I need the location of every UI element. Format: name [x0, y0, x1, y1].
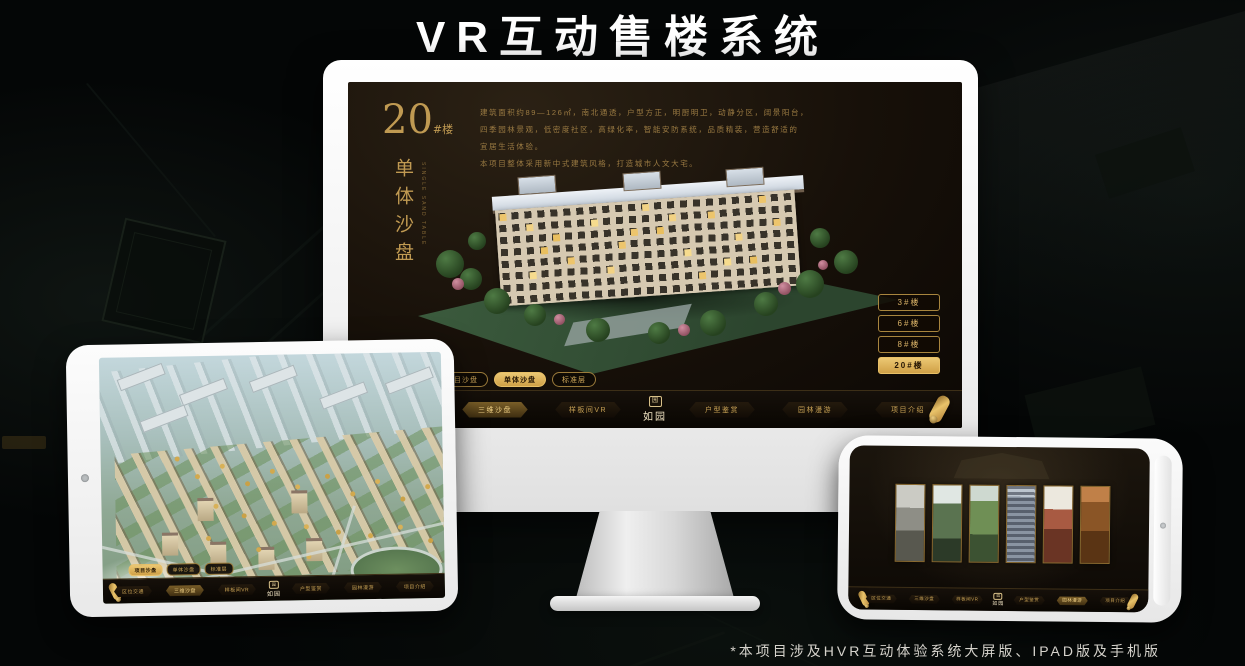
building-number: 20	[382, 97, 433, 143]
floor-button-group: 3#楼 6#楼 8#楼 20#楼	[878, 294, 940, 374]
nav-item-label: 户型鉴赏	[1019, 597, 1039, 603]
vertical-title-english: SINGLE SAND TABLE	[420, 162, 426, 246]
floor-button-6[interactable]: 6#楼	[878, 315, 940, 332]
flower-bush	[452, 278, 464, 290]
roof-tower	[622, 171, 661, 192]
footnote-caption: *本项目涉及HVR互动体验系统大屏版、IPAD版及手机版	[730, 641, 1161, 661]
scene-panel-garden[interactable]	[932, 484, 963, 562]
floor-button-label: 20#楼	[894, 360, 923, 371]
phone-navbar: 区位交通 三维沙盘 样板间VR 园 如园 户型鉴赏 园林漫游 项目介绍	[848, 586, 1148, 612]
flower-bush	[554, 314, 565, 325]
flower-bush	[678, 324, 690, 336]
nav-item-showroom-vr[interactable]: 样板间VR	[949, 595, 985, 604]
nav-item-label: 项目介绍	[891, 405, 925, 415]
brand-logo: 园 如园	[992, 593, 1004, 607]
tree	[834, 250, 858, 274]
brand-seal-icon: 园	[649, 396, 662, 407]
nav-item-label: 三维沙盘	[478, 405, 512, 415]
nav-item-label: 样板间VR	[225, 586, 250, 593]
flower-bush	[818, 260, 828, 270]
nav-item-label: 园林漫游	[798, 405, 832, 415]
nav-item-showroom-vr[interactable]: 样板间VR	[550, 402, 626, 418]
monitor-stand	[576, 511, 734, 598]
phone-side-bezel	[1153, 456, 1172, 606]
aerial-tower	[210, 542, 226, 565]
monitor-stand-base	[550, 596, 760, 611]
nav-item-label: 项目介绍	[404, 583, 426, 590]
vertical-title: 单体沙盘	[390, 158, 417, 270]
tab-project-sandtable[interactable]: 项目沙盘	[128, 564, 162, 577]
tree	[700, 310, 726, 336]
phone-camera-icon	[1160, 523, 1166, 529]
nav-item-garden-tour[interactable]: 园林漫游	[1054, 596, 1090, 605]
scene-panel-autumn-view[interactable]	[1043, 485, 1074, 563]
nav-item-floorplans[interactable]: 户型鉴赏	[1011, 596, 1047, 605]
tab-single-sandtable[interactable]: 单体沙盘	[166, 563, 200, 576]
nav-item-3d-sandtable[interactable]: 三维沙盘	[906, 594, 942, 603]
building-number-heading: 20#楼	[382, 98, 453, 152]
nav-item-location[interactable]: 区位交通	[863, 594, 899, 603]
nav-item-3d-sandtable[interactable]: 三维沙盘	[457, 402, 533, 418]
nav-item-label: 三维沙盘	[174, 587, 196, 594]
description-line: 宜居生活体验。	[480, 138, 910, 155]
background-map-marker	[2, 436, 46, 449]
floor-button-label: 8#楼	[898, 339, 921, 350]
tree	[484, 288, 510, 314]
flower-bush	[778, 282, 791, 295]
aerial-tower	[197, 498, 213, 521]
scroll-menu-icon[interactable]	[927, 394, 952, 425]
tree	[436, 250, 464, 278]
tree	[810, 228, 830, 248]
description-line: 本项目整体采用新中式建筑风格，打造城市人文大宅。	[480, 155, 910, 172]
nav-item-floorplans[interactable]: 户型鉴赏	[289, 582, 333, 594]
nav-item-label: 区位交通	[122, 588, 144, 595]
scroll-menu-icon[interactable]	[1126, 593, 1139, 610]
floor-button-label: 3#楼	[898, 297, 921, 308]
poster-title: VR互动售楼系统	[0, 1, 1245, 65]
nav-item-garden-tour[interactable]: 园林漫游	[777, 402, 853, 418]
description-line: 四季园林景观，低密度社区，高绿化率，智能安防系统，品质精装，营造舒适的	[480, 121, 910, 138]
mode-tab-group: 项目沙盘 单体沙盘 标准层	[436, 372, 596, 387]
nav-item-location[interactable]: 区位交通	[111, 585, 155, 597]
floor-button-label: 6#楼	[898, 318, 921, 329]
brand-logo: 园 如园	[643, 396, 667, 423]
nav-item-label: 园林漫游	[352, 584, 374, 591]
tab-standard-floor[interactable]: 标准层	[552, 372, 596, 387]
scene-panel-interior[interactable]	[1080, 486, 1111, 564]
nav-item-project-intro[interactable]: 项目介绍	[393, 580, 437, 592]
poster-canvas: VR互动售楼系统 20#楼 单体沙盘 SINGLE SAND TABLE 建筑面…	[0, 0, 1245, 666]
brand-logo-name: 如园	[267, 588, 281, 597]
building-number-suffix: #楼	[433, 123, 453, 136]
brand-logo-name: 如园	[643, 408, 667, 423]
nav-item-label: 项目介绍	[1105, 598, 1125, 604]
building-marker-dots[interactable]	[175, 456, 180, 461]
scene-panel-building-facade[interactable]	[1006, 485, 1037, 563]
tree	[586, 318, 610, 342]
tab-label: 单体沙盘	[173, 566, 195, 573]
brand-seal-icon: 园	[269, 580, 279, 588]
tree	[524, 304, 546, 326]
nav-item-label: 区位交通	[871, 596, 891, 602]
nav-item-label: 三维沙盘	[914, 596, 934, 602]
floor-button-20[interactable]: 20#楼	[878, 357, 940, 374]
roof-tower	[725, 167, 764, 188]
scene-panel-landscape[interactable]	[969, 485, 1000, 563]
brand-logo-name: 如园	[992, 600, 1004, 607]
tablet-navbar: 区位交通 三维沙盘 样板间VR 园 如园 户型鉴赏 园林漫游 项目介绍	[103, 573, 445, 604]
tree	[796, 270, 824, 298]
nav-item-label: 园林漫游	[1062, 598, 1082, 604]
tab-label: 标准层	[562, 375, 586, 385]
nav-item-label: 样板间VR	[956, 596, 978, 602]
tablet-camera-icon	[81, 474, 89, 482]
phone-screen: 区位交通 三维沙盘 样板间VR 园 如园 户型鉴赏 园林漫游 项目介绍	[848, 445, 1150, 612]
brand-logo: 园 如园	[267, 580, 281, 597]
scene-panel-courtyard[interactable]	[895, 484, 926, 562]
nav-item-garden-tour[interactable]: 园林漫游	[341, 581, 385, 593]
nav-item-floorplans[interactable]: 户型鉴赏	[684, 402, 760, 418]
phone-device: 区位交通 三维沙盘 样板间VR 园 如园 户型鉴赏 园林漫游 项目介绍	[837, 435, 1183, 623]
tab-standard-floor[interactable]: 标准层	[205, 563, 234, 575]
roof-tower	[517, 175, 556, 196]
tree	[648, 322, 670, 344]
nav-item-showroom-vr[interactable]: 样板间VR	[215, 584, 259, 596]
tablet-mode-tab-group: 项目沙盘 单体沙盘 标准层	[128, 563, 233, 577]
aerial-tower	[291, 490, 307, 513]
tree	[754, 292, 778, 316]
description-line: 建筑面积约89—126㎡，南北通透，户型方正，明厨明卫，动静分区，阔景阳台，	[480, 104, 910, 121]
tree	[468, 232, 486, 250]
tab-single-sandtable[interactable]: 单体沙盘	[494, 372, 546, 387]
scene-panel-gallery	[895, 484, 1111, 564]
nav-item-label: 户型鉴赏	[705, 405, 739, 415]
floor-button-8[interactable]: 8#楼	[878, 336, 940, 353]
nav-item-label: 户型鉴赏	[300, 584, 322, 591]
tablet-screen: 项目沙盘 单体沙盘 标准层 区位交通 三维沙盘 样板间VR 园 如园 户型鉴赏 …	[99, 352, 445, 604]
tab-label: 单体沙盘	[504, 375, 536, 385]
nav-item-3d-sandtable[interactable]: 三维沙盘	[163, 584, 207, 596]
nav-item-label: 样板间VR	[569, 405, 607, 415]
building-description: 建筑面积约89—126㎡，南北通透，户型方正，明厨明卫，动静分区，阔景阳台， 四…	[480, 104, 910, 172]
tab-label: 项目沙盘	[135, 566, 157, 573]
tablet-device: 项目沙盘 单体沙盘 标准层 区位交通 三维沙盘 样板间VR 园 如园 户型鉴赏 …	[66, 339, 459, 618]
tab-label: 标准层	[211, 565, 228, 572]
lit-windows	[499, 214, 506, 221]
background-plaque-frame	[116, 232, 212, 330]
floor-button-3[interactable]: 3#楼	[878, 294, 940, 311]
